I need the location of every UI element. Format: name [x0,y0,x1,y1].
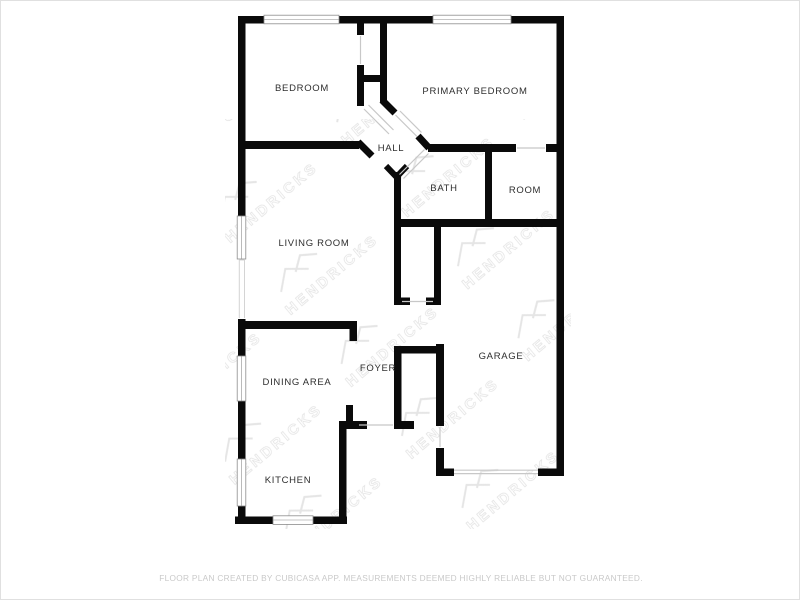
window-kitchen-left [237,459,246,506]
window-bedroom-top [264,15,339,24]
room-label-bedroom: BEDROOM [275,83,329,94]
floorplan-canvas: HENDRICKS [1,1,800,600]
room-label-kitchen: KITCHEN [265,475,312,486]
footer-disclaimer: FLOOR PLAN CREATED BY CUBICASA APP. MEAS… [159,573,643,583]
room-label-foyer: FOYER [360,363,396,374]
window-primary-top [433,15,511,24]
room-label-room: ROOM [509,185,541,196]
room-label-dining-area: DINING AREA [263,377,332,388]
window-kitchen-bottom [273,516,313,525]
window-living-left [237,216,246,259]
window-dining-left [237,356,246,401]
room-label-living-room: LIVING ROOM [278,238,349,249]
room-label-primary-bedroom: PRIMARY BEDROOM [422,86,527,97]
floorplan-page: HENDRICKS [0,0,800,600]
room-label-hall: HALL [378,143,405,154]
room-label-garage: GARAGE [479,351,524,362]
room-label-bath: BATH [430,183,457,194]
